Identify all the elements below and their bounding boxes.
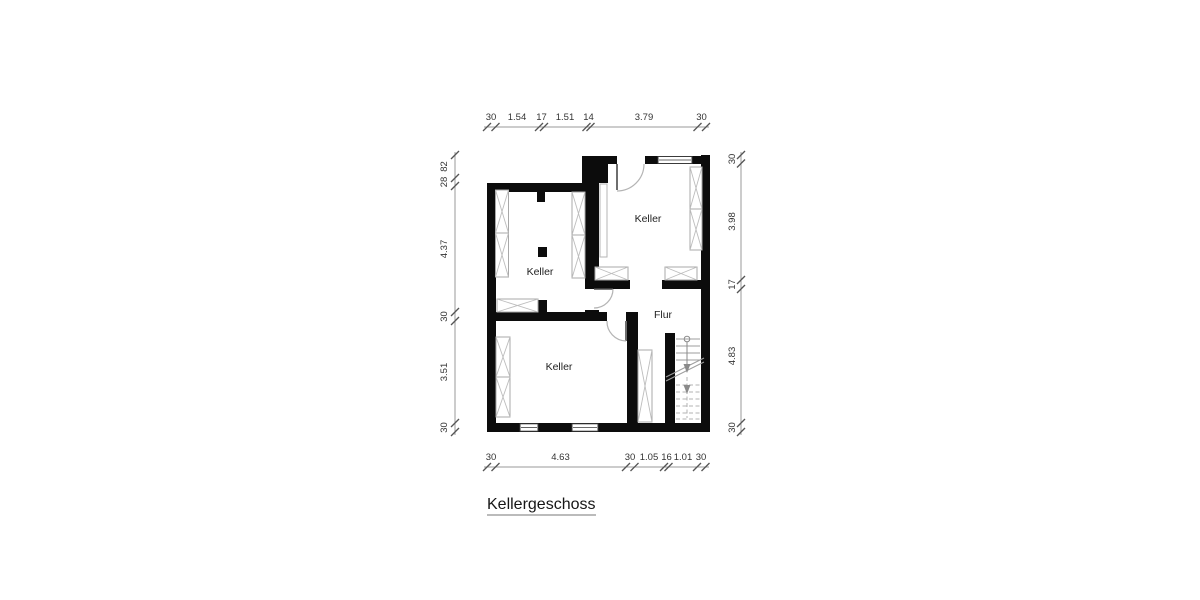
room-label-keller-bottom: Keller (546, 361, 573, 373)
hatch-box (497, 299, 538, 312)
dimension-label: 1.01 (674, 452, 693, 463)
dimension-label: 3.51 (439, 363, 450, 382)
hatch-box (665, 267, 697, 280)
pillar (538, 247, 547, 257)
wall-niche (600, 184, 607, 257)
dimension-label: 16 (661, 452, 672, 463)
dimension-label: 30 (625, 452, 636, 463)
door-arc (594, 289, 613, 308)
dimension-label: 30 (727, 154, 738, 165)
wall-top-right-segment (645, 156, 658, 164)
door-arc (617, 164, 644, 191)
window-bottom-1 (520, 424, 538, 431)
drawing-title: Kellergeschoss (487, 496, 596, 513)
wall-top-right-segment (582, 156, 617, 164)
hatch-box (595, 267, 628, 280)
wall-top-right-segment (692, 156, 710, 164)
dimension-chain-left: 82 28 4.37 30 3.51 30 (439, 151, 459, 436)
door-top-entry (617, 164, 644, 191)
room-label-keller-top-right: Keller (635, 213, 662, 225)
floor-plan-page: 30 1.54 17 1.51 14 3.79 30 30 4.63 30 1.… (0, 0, 1200, 600)
hatch-box (496, 190, 509, 277)
wall-bottom-room-right (627, 321, 638, 423)
wall-hall-top-right (662, 280, 710, 289)
dimension-label: 30 (727, 422, 738, 433)
dimension-label: 30 (486, 452, 497, 463)
door-hall-to-bottom-keller (607, 321, 626, 341)
hatch-box (496, 337, 510, 417)
dimension-label: 1.05 (640, 452, 659, 463)
stair-arrow (684, 385, 691, 394)
dimension-label: 4.63 (551, 452, 570, 463)
dimension-chain-top: 30 1.54 17 1.51 14 3.79 30 (483, 112, 710, 131)
dimension-label: 3.98 (727, 212, 738, 231)
dimension-chain-bottom: 30 4.63 30 1.05 16 1.01 30 (483, 452, 710, 471)
dimension-label: 1.54 (508, 112, 527, 123)
door-keller-to-hall (594, 289, 613, 308)
dimension-label: 1.51 (556, 112, 575, 123)
floor-plan-canvas: 30 1.54 17 1.51 14 3.79 30 30 4.63 30 1.… (0, 0, 1200, 600)
dimension-label: 30 (696, 112, 707, 123)
dimension-label: 30 (696, 452, 707, 463)
dimension-label: 28 (439, 177, 450, 188)
dimension-label: 3.79 (635, 112, 654, 123)
wall-middle-horizontal (487, 312, 607, 321)
wall-left-exterior (487, 183, 496, 432)
dimension-label: 4.83 (727, 347, 738, 366)
dimension-label: 17 (536, 112, 547, 123)
dimension-label: 30 (486, 112, 497, 123)
dimension-label: 82 (439, 161, 450, 172)
hatch-box (690, 167, 702, 250)
dimension-label: 30 (439, 422, 450, 433)
dimension-chain-right: 30 3.98 17 4.83 30 (727, 151, 745, 436)
room-label-flur: Flur (654, 309, 673, 321)
room-label-keller-top-left: Keller (527, 266, 554, 278)
hatch-box (572, 192, 585, 278)
walls (487, 155, 710, 432)
dimension-label: 4.37 (439, 240, 450, 259)
wall-stub-middle (538, 300, 547, 312)
wall-middle-corner (626, 312, 638, 321)
drawing-title-block: Kellergeschoss (487, 496, 596, 515)
dimension-label: 30 (439, 311, 450, 322)
dimension-label: 17 (727, 279, 738, 290)
wall-stair-left (665, 333, 675, 423)
window-bottom-2 (572, 424, 598, 431)
door-arc (607, 321, 626, 341)
wall-stub-top (537, 192, 545, 202)
dimension-label: 14 (583, 112, 594, 123)
hatch-box (638, 350, 652, 422)
window-top (658, 157, 692, 164)
wall-hall-top-left (585, 280, 630, 289)
